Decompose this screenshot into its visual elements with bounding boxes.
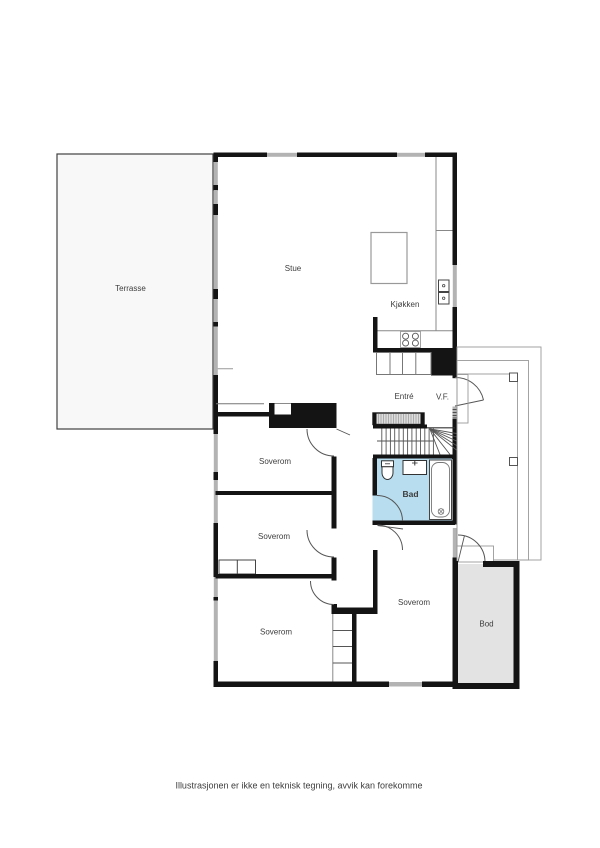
svg-text:Bod: Bod	[479, 620, 493, 629]
svg-text:Kjøkken: Kjøkken	[391, 300, 420, 309]
svg-text:Illustrasjonen er ikke en tekn: Illustrasjonen er ikke en teknisk tegnin…	[175, 781, 422, 791]
svg-text:Soverom: Soverom	[398, 598, 430, 607]
svg-text:Entré: Entré	[394, 392, 414, 401]
svg-text:Stue: Stue	[285, 264, 302, 273]
svg-text:V.F.: V.F.	[436, 393, 449, 402]
svg-text:Terrasse: Terrasse	[115, 284, 146, 293]
svg-text:Soverom: Soverom	[258, 532, 290, 541]
svg-text:Soverom: Soverom	[260, 628, 292, 637]
svg-text:Bad: Bad	[402, 489, 418, 499]
svg-text:Soverom: Soverom	[259, 457, 291, 466]
